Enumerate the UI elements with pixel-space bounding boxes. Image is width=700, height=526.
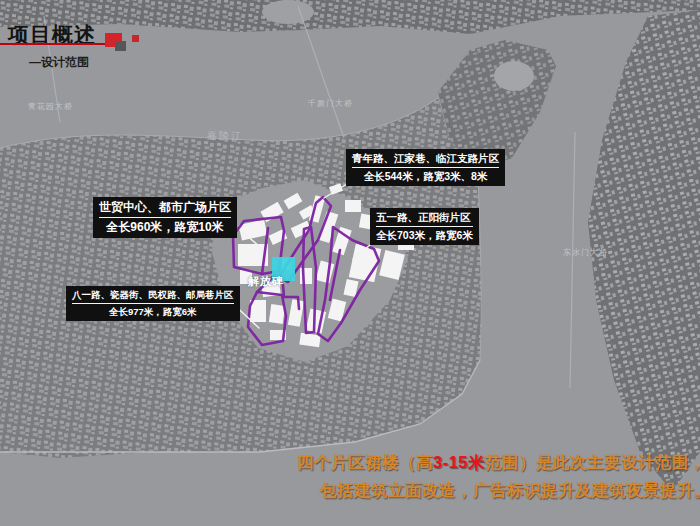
summary-height-range-highlight: 3-15米 [433,453,485,471]
district-label-box-wuyilu: 五一路、正阳街片区 全长703米，路宽6米 [370,208,479,245]
river-label: 嘉陵江 [207,129,243,143]
district-label-box-bayilu: 八一路、瓷器街、民权路、邮局巷片区 全长977米，路宽6米 [66,286,240,321]
district-name: 世贸中心、都市广场片区 [99,200,231,218]
district-detail: 全长703米，路宽6米 [376,227,473,242]
bridge-label-dongshuimen: 东水门大桥 [563,247,608,258]
landmark-label: 解放碑 [248,274,284,289]
map-canvas [0,0,700,526]
district-label-box-qingnianlu: 青年路、江家巷、临江支路片区 全长544米，路宽3米、8米 [346,149,505,186]
title-accent-square-small [132,35,139,42]
title-accent-square-gray [115,41,126,51]
district-detail: 全长960米，路宽10米 [99,218,231,235]
summary-line-1: 四个片区裙楼（高3-15米范围）是此次主要设计范围， [297,452,700,474]
title-underline [0,43,119,45]
district-label-box-shimao: 世贸中心、都市广场片区 全长960米，路宽10米 [93,197,237,238]
bridge-label-huanghuayuan: 黄花园大桥 [28,101,73,112]
district-name: 五一路、正阳街片区 [376,211,473,227]
slide: 项目概述 —设计范围 黄花园大桥 千厮门大桥 东水门大桥 嘉陵江 解放碑 世贸中… [0,0,700,526]
summary-line-1-post: 范围）是此次主要设计范围， [485,453,700,471]
district-detail: 全长544米，路宽3米、8米 [352,168,499,183]
summary-line-1-pre: 四个片区裙楼（高 [297,453,433,471]
bridge-label-qiansimen: 千厮门大桥 [308,98,353,109]
summary-line-2: 包括建筑立面改造，广告标识提升及建筑夜景提升。 [320,480,700,502]
district-name: 八一路、瓷器街、民权路、邮局巷片区 [72,289,234,304]
page-subtitle: —设计范围 [29,54,89,71]
district-name: 青年路、江家巷、临江支路片区 [352,152,499,168]
district-detail: 全长977米，路宽6米 [72,304,234,318]
